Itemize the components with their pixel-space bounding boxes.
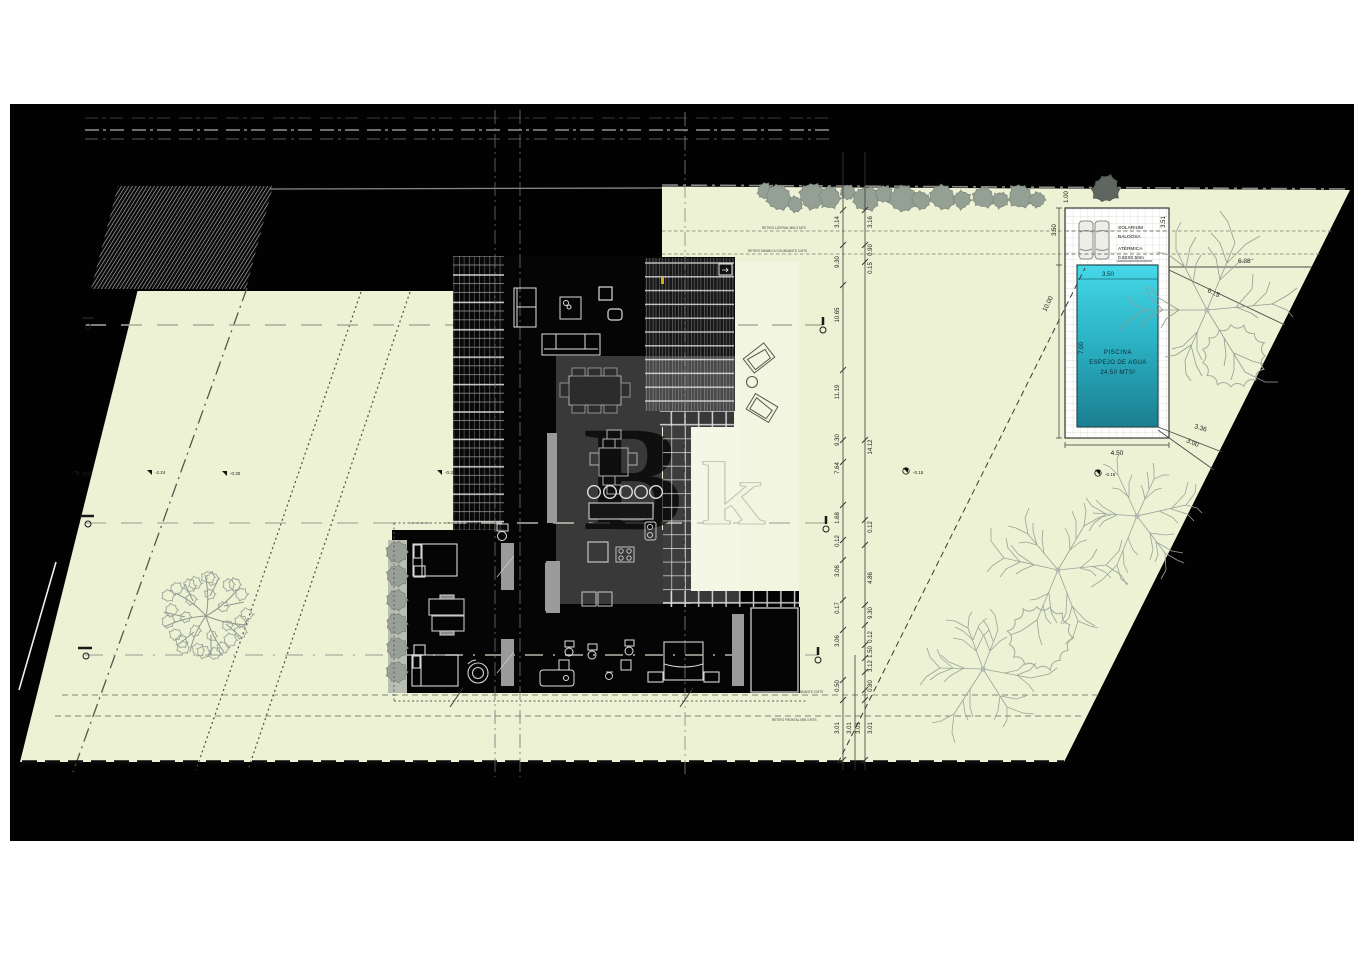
svg-text:k: k (700, 444, 765, 544)
svg-text:0.12: 0.12 (868, 521, 874, 533)
svg-text:-0.15: -0.15 (913, 470, 924, 475)
svg-text:24.50 MTS²: 24.50 MTS² (1100, 370, 1135, 376)
svg-text:11.19: 11.19 (835, 384, 841, 399)
svg-text:7.64: 7.64 (835, 462, 841, 474)
svg-text:3.51: 3.51 (1161, 216, 1167, 228)
svg-text:0.17: 0.17 (835, 602, 841, 614)
svg-text:ATÉRMICA: ATÉRMICA (1118, 245, 1143, 252)
svg-text:BALDOSA: BALDOSA (1118, 234, 1141, 240)
svg-text:3.14: 3.14 (835, 216, 841, 228)
svg-text:1.00: 1.00 (1064, 191, 1070, 203)
svg-text:-0.15: -0.15 (1105, 472, 1116, 477)
svg-text:3.01: 3.01 (856, 722, 862, 734)
svg-text:1.68: 1.68 (835, 512, 841, 524)
svg-text:-2.24: -2.24 (155, 470, 166, 475)
svg-text:9.30: 9.30 (835, 256, 841, 268)
svg-text:PISCINA: PISCINA (1104, 350, 1132, 356)
svg-text:3.50: 3.50 (1102, 272, 1114, 278)
svg-text:0.80: 0.80 (868, 680, 874, 692)
svg-text:9.30: 9.30 (868, 607, 874, 619)
svg-text:0.90: 0.90 (868, 244, 874, 256)
svg-text:0.50X0.50m: 0.50X0.50m (1118, 255, 1144, 261)
svg-text:-0.36: -0.36 (445, 470, 456, 475)
svg-text:3.50: 3.50 (1052, 224, 1058, 236)
svg-text:3.06: 3.06 (835, 565, 841, 577)
svg-text:-0.30: -0.30 (82, 471, 93, 476)
svg-text:3.12: 3.12 (868, 660, 874, 672)
svg-text:1.50: 1.50 (868, 646, 874, 658)
svg-text:4.50: 4.50 (1111, 450, 1124, 457)
svg-text:RETIRO LATERAL MIN 3 MTS: RETIRO LATERAL MIN 3 MTS (762, 226, 806, 230)
svg-text:3.16: 3.16 (868, 216, 874, 228)
svg-text:0.12: 0.12 (835, 535, 841, 547)
svg-text:10.65: 10.65 (835, 307, 841, 323)
svg-text:SOLARIUM: SOLARIUM (1118, 225, 1143, 231)
svg-text:9.30: 9.30 (835, 434, 841, 446)
svg-text:ESPEJO DE AGUA: ESPEJO DE AGUA (1089, 360, 1147, 366)
svg-text:3.01: 3.01 (868, 722, 874, 734)
svg-text:3.01: 3.01 (835, 722, 841, 734)
svg-text:4.86: 4.86 (868, 572, 874, 584)
svg-text:3.06: 3.06 (835, 635, 841, 647)
svg-text:7.00: 7.00 (1079, 342, 1085, 354)
svg-text:RETIRO FRONTAL MIN 3 MTS: RETIRO FRONTAL MIN 3 MTS (772, 718, 816, 722)
svg-text:14.12: 14.12 (868, 439, 874, 455)
svg-text:RETIRO MINIMO A COLINDANTE 3 M: RETIRO MINIMO A COLINDANTE 3 MTS (748, 249, 807, 253)
svg-text:-0.30: -0.30 (230, 471, 241, 476)
svg-text:0.15: 0.15 (868, 262, 874, 274)
svg-text:0.12: 0.12 (868, 631, 874, 643)
svg-text:3.01: 3.01 (847, 722, 853, 734)
svg-text:0.50: 0.50 (835, 680, 841, 692)
